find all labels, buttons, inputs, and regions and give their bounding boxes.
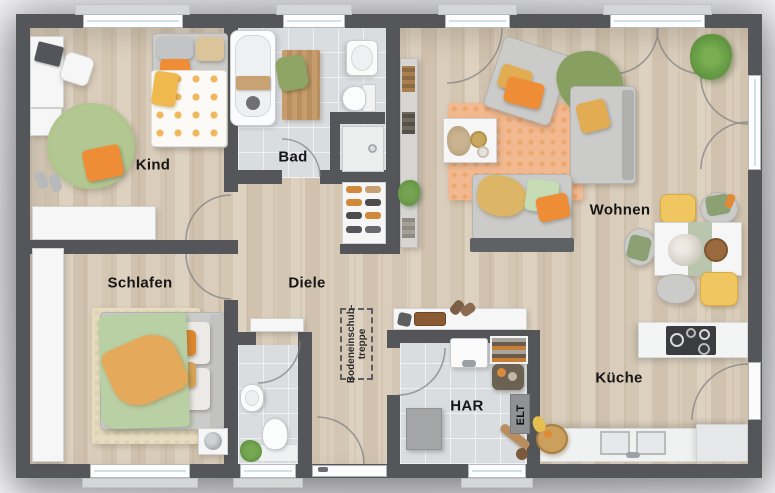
faucet-icon — [626, 452, 640, 458]
fruit-icon — [544, 430, 552, 438]
window-schlafen — [90, 464, 190, 478]
toilet — [342, 86, 366, 111]
bed-pillow — [196, 37, 224, 61]
kitchen-terrace-door — [748, 362, 761, 420]
wardrobe — [32, 248, 64, 462]
wall-har-left-bottom — [387, 395, 400, 464]
elt-panel: ELT — [510, 394, 530, 434]
books-icon — [402, 112, 415, 134]
shower-tray — [342, 126, 384, 172]
window-har — [468, 464, 526, 478]
room-label-har: HAR — [450, 398, 483, 415]
wall-bad-wohnen — [386, 28, 400, 252]
plant-icon — [240, 440, 262, 462]
shoe-icon — [365, 226, 381, 233]
shower-drain-icon — [368, 144, 377, 153]
plant-icon — [398, 180, 420, 206]
fruit-bowl-icon — [704, 238, 728, 262]
room-label-wohnen: Wohnen — [590, 202, 651, 219]
burner-icon — [699, 329, 710, 340]
wall-shower-stub-v — [330, 124, 340, 178]
tray-icon — [414, 312, 446, 326]
window-wc — [240, 464, 296, 478]
room-label-kueche: Küche — [595, 370, 642, 387]
table-lamp-icon — [204, 432, 222, 450]
bowl-icon — [477, 146, 489, 158]
yellow-throw — [151, 70, 179, 107]
bed-pillow — [157, 37, 193, 59]
wall-spine-junction — [224, 240, 238, 254]
wall-wc-top-left — [224, 332, 256, 345]
sofa-base — [470, 238, 574, 252]
window-wohnen-right — [610, 14, 705, 28]
shoe-icon — [365, 199, 381, 206]
dining-chair-yellow — [660, 194, 696, 224]
wc-sink-basin — [245, 390, 259, 406]
bath-caddy — [236, 76, 270, 90]
sink-basin — [351, 45, 373, 71]
attic-ladder-label-line2: treppe — [357, 329, 368, 360]
shoe-icon — [365, 186, 381, 193]
fridge-unit — [696, 424, 748, 462]
washer-door-icon — [462, 360, 476, 367]
shoe-icon — [365, 212, 381, 219]
shoe-icon — [346, 186, 362, 193]
vacuum-icon — [516, 448, 528, 460]
window-sill — [461, 478, 533, 488]
wall-bad-bottom-left — [238, 170, 282, 184]
sink-basin-right — [636, 431, 666, 455]
bath-faucet-icon — [246, 96, 260, 110]
wall-wc-top-right — [298, 332, 312, 345]
dining-chair-gray — [656, 274, 696, 304]
window-kind — [83, 14, 183, 28]
window-sill — [82, 478, 198, 488]
burner-icon — [670, 333, 684, 347]
shoe-icon — [346, 212, 362, 219]
room-label-diele: Diele — [288, 275, 325, 292]
sink-basin-left — [600, 431, 630, 455]
window-bad — [283, 14, 345, 28]
door-handle-icon — [318, 467, 328, 472]
shoe-icon — [346, 199, 362, 206]
wall-wc-right — [298, 345, 312, 464]
burner-icon — [698, 343, 710, 355]
har-cabinet — [406, 408, 442, 450]
books-icon — [402, 66, 415, 92]
attic-ladder-label-line1: Bodeneinschub- — [346, 305, 357, 383]
decor-icon — [397, 312, 412, 327]
dining-chair-yellow — [700, 272, 738, 306]
balcony-double-door — [748, 75, 761, 170]
room-label-bad: Bad — [278, 149, 307, 166]
kind-sideboard — [32, 206, 156, 240]
wc-toilet — [262, 418, 288, 450]
sofa-backrest — [622, 90, 634, 180]
hall-shelf — [250, 318, 304, 332]
wall-niche-bottom — [340, 244, 400, 254]
room-label-kind: Kind — [136, 157, 171, 174]
elt-label: ELT — [515, 405, 527, 426]
laundry-icon — [497, 368, 506, 377]
room-label-schlafen: Schlafen — [108, 275, 173, 292]
bed-headboard — [210, 314, 224, 428]
attic-ladder-outline: Bodeneinschub- treppe — [340, 308, 373, 380]
green-towel — [274, 54, 309, 93]
wall-shower-stub-h — [330, 112, 385, 124]
wall-har-left-top — [387, 330, 400, 348]
floorplan: ELT Bodeneinschub- treppe Kind Bad Wohne… — [0, 0, 775, 493]
dried-plant-icon — [447, 126, 471, 156]
window-sill — [233, 478, 303, 488]
window-wohnen-left — [445, 14, 510, 28]
shoe-icon — [346, 226, 362, 233]
drying-rack — [490, 336, 528, 364]
laundry-icon — [508, 372, 517, 381]
books-icon — [402, 218, 415, 238]
burner-icon — [686, 328, 696, 338]
